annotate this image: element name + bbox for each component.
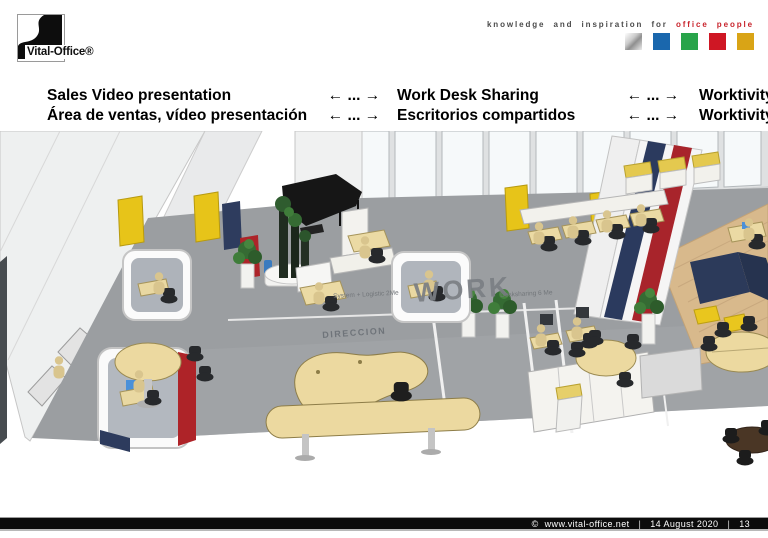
title-row-english: Sales Video presentation ← ... → Work De…: [47, 86, 741, 106]
title-left-es: Área de ventas, vídeo presentación: [47, 106, 311, 126]
tagline-prefix: knowledge and inspiration for: [487, 20, 668, 29]
color-square-blue: [653, 33, 670, 50]
footer-date: 14 August 2020: [650, 519, 718, 529]
title-row-spanish: Área de ventas, vídeo presentación ← ...…: [47, 106, 741, 126]
footer-website: www.vital-office.net: [545, 519, 630, 529]
color-square-green: [681, 33, 698, 50]
footer-bar: © www.vital-office.net | 14 August 2020 …: [0, 517, 768, 531]
color-square-gold: [737, 33, 754, 50]
slide-title-block: Sales Video presentation ← ... → Work De…: [47, 86, 741, 126]
title-center-en: Work Desk Sharing: [397, 86, 607, 106]
tagline-highlight: office people: [676, 20, 754, 29]
arrow-right-en: ← ... →: [607, 86, 699, 106]
footer-separator: |: [727, 519, 730, 529]
vital-office-logo: Vital-Office®: [17, 14, 147, 66]
footer-page-number: 13: [739, 519, 750, 529]
dark-wall-edge: [0, 256, 7, 444]
brand-tagline: knowledge and inspiration for office peo…: [487, 20, 754, 29]
title-left-en: Sales Video presentation: [47, 86, 311, 106]
arrow-left-en: ← ... →: [311, 86, 397, 106]
title-right-en: Worktivity: [699, 86, 768, 106]
vital-office-logo-text: Vital-Office®: [25, 45, 96, 59]
color-square-silver: [625, 33, 642, 50]
brand-color-squares: [625, 33, 754, 50]
color-square-red: [709, 33, 726, 50]
title-center-es: Escritorios compartidos: [397, 106, 607, 126]
copyright-symbol: ©: [532, 519, 539, 529]
office-3d-rendering: System + Logistic 2Me WORK Desksharing 6…: [0, 131, 768, 483]
presentation-slide: Vital-Office® knowledge and inspiration …: [0, 0, 768, 538]
arrow-right-es: ← ... →: [607, 106, 699, 126]
office-scene-svg: [0, 131, 768, 483]
arrow-left-es: ← ... →: [311, 106, 397, 126]
footer-separator: |: [639, 519, 642, 529]
title-right-es: Worktivity: [699, 106, 768, 126]
